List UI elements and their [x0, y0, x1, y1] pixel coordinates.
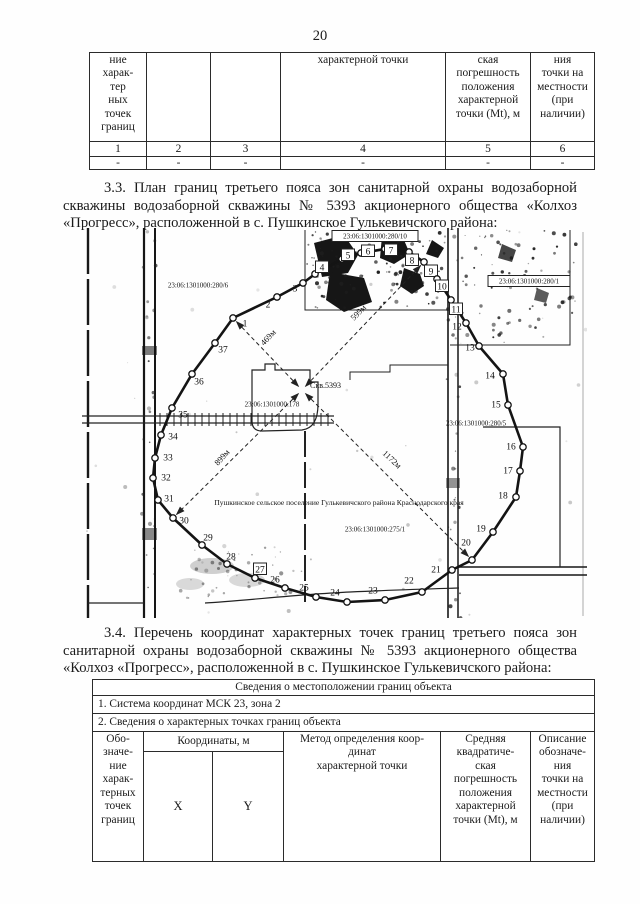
- boundary-point-number: 23: [368, 587, 378, 597]
- header-cell: [147, 53, 211, 142]
- boundary-point-marker: [517, 468, 523, 474]
- distance-label: 1172м: [381, 448, 404, 471]
- header-cell: характерной точки: [281, 53, 446, 142]
- col-num: 3: [211, 142, 281, 157]
- boundary-point-number: 8: [410, 257, 415, 267]
- boundary-point-number: 7: [389, 247, 394, 257]
- well-label: Скв.5393: [310, 381, 341, 390]
- boundary-point-marker: [469, 557, 475, 563]
- table-title: Сведения о местоположении границ объекта: [93, 680, 595, 696]
- boundary-point-number: 22: [404, 577, 414, 587]
- col-num: 2: [147, 142, 211, 157]
- dash-cell: -: [446, 157, 531, 170]
- boundary-point-marker: [421, 259, 427, 265]
- boundary-point-marker: [313, 594, 319, 600]
- boundary-point-marker: [520, 444, 526, 450]
- field-step-boundary: [350, 365, 448, 380]
- boundary-point-number: 19: [476, 525, 486, 535]
- col-num: 1: [90, 142, 147, 157]
- boundary-point-number: 20: [461, 539, 471, 549]
- boundary-point-number: 15: [491, 401, 501, 411]
- boundary-point-number: 2: [266, 301, 271, 311]
- boundary-point-number: 37: [218, 346, 228, 356]
- boundary-point-marker: [448, 297, 454, 303]
- boundary-point-marker: [449, 567, 455, 573]
- column-number-row: 1 2 3 4 5 6: [90, 142, 595, 157]
- zone-plan-map: 1234567891011121314151617181920212223242…: [82, 228, 587, 618]
- boundary-point-number: 1: [243, 320, 248, 330]
- boundary-point-marker: [170, 515, 176, 521]
- boundary-point-marker: [155, 497, 161, 503]
- field-boundary-hatching: [82, 413, 334, 426]
- dash-cell: -: [147, 157, 211, 170]
- boundary-point-marker: [274, 294, 280, 300]
- boundary-point-marker: [382, 597, 388, 603]
- coordinate-system: 1. Система координат МСК 23, зона 2: [93, 696, 595, 714]
- coordinates-header: Координаты, м: [144, 732, 284, 752]
- header-cell: ния точки на местности (при наличии): [531, 53, 595, 142]
- boundary-point-number: 31: [164, 495, 174, 505]
- paragraph-3-3: 3.3. План границ третьего пояса зон сани…: [63, 180, 577, 233]
- boundary-point-number: 29: [203, 534, 213, 544]
- boundary-point-number: 6: [366, 248, 371, 258]
- boundary-point-number: 5: [346, 252, 351, 262]
- boundary-point-number: 3: [293, 285, 298, 295]
- boundary-point-marker: [230, 315, 236, 321]
- method-header: Метод определения коор- динат характерно…: [284, 732, 441, 862]
- column-header-row: Обо- значе- ние харак- терных точек гран…: [93, 732, 595, 752]
- y-column-header: Y: [213, 752, 284, 862]
- col-num: 4: [281, 142, 446, 157]
- boundary-point-marker: [505, 402, 511, 408]
- designation-header: Обо- значе- ние харак- терных точек гран…: [93, 732, 144, 862]
- top-table-continued: ние харак- тер ных точек границ характер…: [89, 52, 595, 170]
- dash-cell: -: [90, 157, 147, 170]
- boundary-point-number: 10: [437, 283, 447, 293]
- boundary-point-number: 11: [451, 306, 460, 316]
- cadastral-number-label: 23:06:1301000:280/10: [343, 233, 407, 241]
- boundary-point-number: 35: [178, 411, 188, 421]
- document-page: 20 ние харак- тер ных точек границ харак…: [0, 0, 640, 904]
- boundary-point-number: 25: [299, 584, 309, 594]
- boundary-point-number: 21: [431, 566, 441, 576]
- boundary-point-number: 26: [270, 576, 280, 586]
- description-header: Описание обозначе- ния точки на местност…: [531, 732, 595, 862]
- dash-cell: -: [211, 157, 281, 170]
- cadastral-number-label: 23:06:1301000:280/5: [446, 420, 507, 428]
- top-table-header-row: ние харак- тер ных точек границ характер…: [90, 53, 595, 142]
- boundary-point-number: 33: [163, 454, 173, 464]
- boundary-point-marker: [513, 494, 519, 500]
- paragraph-3-4: 3.4. Перечень координат характерных точе…: [63, 625, 577, 678]
- boundary-point-number: 12: [452, 323, 462, 333]
- boundary-point-marker: [282, 585, 288, 591]
- boundary-point-marker: [152, 455, 158, 461]
- cadastral-labels: 23:06:1301000:280/623:06:1301000:280/102…: [168, 231, 570, 534]
- boundary-point-marker: [300, 280, 306, 286]
- map-buildings: [176, 235, 549, 590]
- boundary-point-number: 30: [179, 517, 189, 527]
- boundary-point-marker: [169, 405, 175, 411]
- cadastral-number-label: 23:06:1301000:280/1: [499, 278, 560, 286]
- boundary-point-number: 13: [465, 344, 475, 354]
- points-info-row: 2. Сведения о характерных точках границ …: [93, 714, 595, 732]
- boundary-point-number: 28: [226, 553, 236, 563]
- coordinates-table: Сведения о местоположении границ объекта…: [92, 679, 595, 862]
- dash-cell: -: [531, 157, 595, 170]
- empty-value-row: - - - - - -: [90, 157, 595, 170]
- table-title-row: Сведения о местоположении границ объекта: [93, 680, 595, 696]
- x-column-header: X: [144, 752, 213, 862]
- boundary-point-number: 16: [506, 443, 516, 453]
- boundary-point-number: 34: [168, 433, 178, 443]
- distance-label: 899м: [212, 447, 232, 468]
- page-number: 20: [0, 28, 640, 45]
- boundary-point-marker: [150, 475, 156, 481]
- cadastral-number-label: 23:06:1301000:280/6: [168, 282, 229, 290]
- map-canvas: 1234567891011121314151617181920212223242…: [82, 228, 587, 618]
- boundary-point-number: 4: [320, 264, 325, 274]
- error-header: Средняя квадратиче- ская погрешность пол…: [441, 732, 531, 862]
- dash-cell: -: [281, 157, 446, 170]
- coord-system-row: 1. Система координат МСК 23, зона 2: [93, 696, 595, 714]
- boundary-point-marker: [476, 343, 482, 349]
- col-num: 5: [446, 142, 531, 157]
- boundary-point-number: 18: [498, 492, 508, 502]
- header-cell: ние харак- тер ных точек границ: [90, 53, 147, 142]
- points-info: 2. Сведения о характерных точках границ …: [93, 714, 595, 732]
- boundary-point-marker: [463, 320, 469, 326]
- boundary-point-number: 32: [161, 474, 171, 484]
- boundary-point-number: 27: [255, 566, 265, 576]
- boundary-point-number: 36: [194, 378, 204, 388]
- boundary-point-marker: [419, 589, 425, 595]
- boundary-point-marker: [189, 371, 195, 377]
- cadastral-number-label: 23:06:1301000:178: [245, 401, 300, 409]
- distance-label: 469м: [258, 327, 278, 348]
- boundary-point-marker: [212, 340, 218, 346]
- cadastral-number-label: 23:06:1301000:275/1: [345, 526, 406, 534]
- boundary-point-number: 24: [330, 589, 340, 599]
- col-num: 6: [531, 142, 595, 157]
- boundary-point-marker: [252, 575, 258, 581]
- header-cell: [211, 53, 281, 142]
- boundary-point-marker: [158, 432, 164, 438]
- settlement-label: Пушкинское сельское поселение Гулькевичс…: [214, 498, 464, 507]
- boundary-point-marker: [344, 599, 350, 605]
- boundary-point-number: 17: [503, 467, 513, 477]
- boundary-point-marker: [500, 371, 506, 377]
- header-cell: ская погрешность положения характерной т…: [446, 53, 531, 142]
- boundary-point-number: 14: [485, 372, 495, 382]
- radius-lines: [176, 265, 469, 557]
- boundary-point-marker: [490, 529, 496, 535]
- boundary-point-number: 9: [429, 268, 434, 278]
